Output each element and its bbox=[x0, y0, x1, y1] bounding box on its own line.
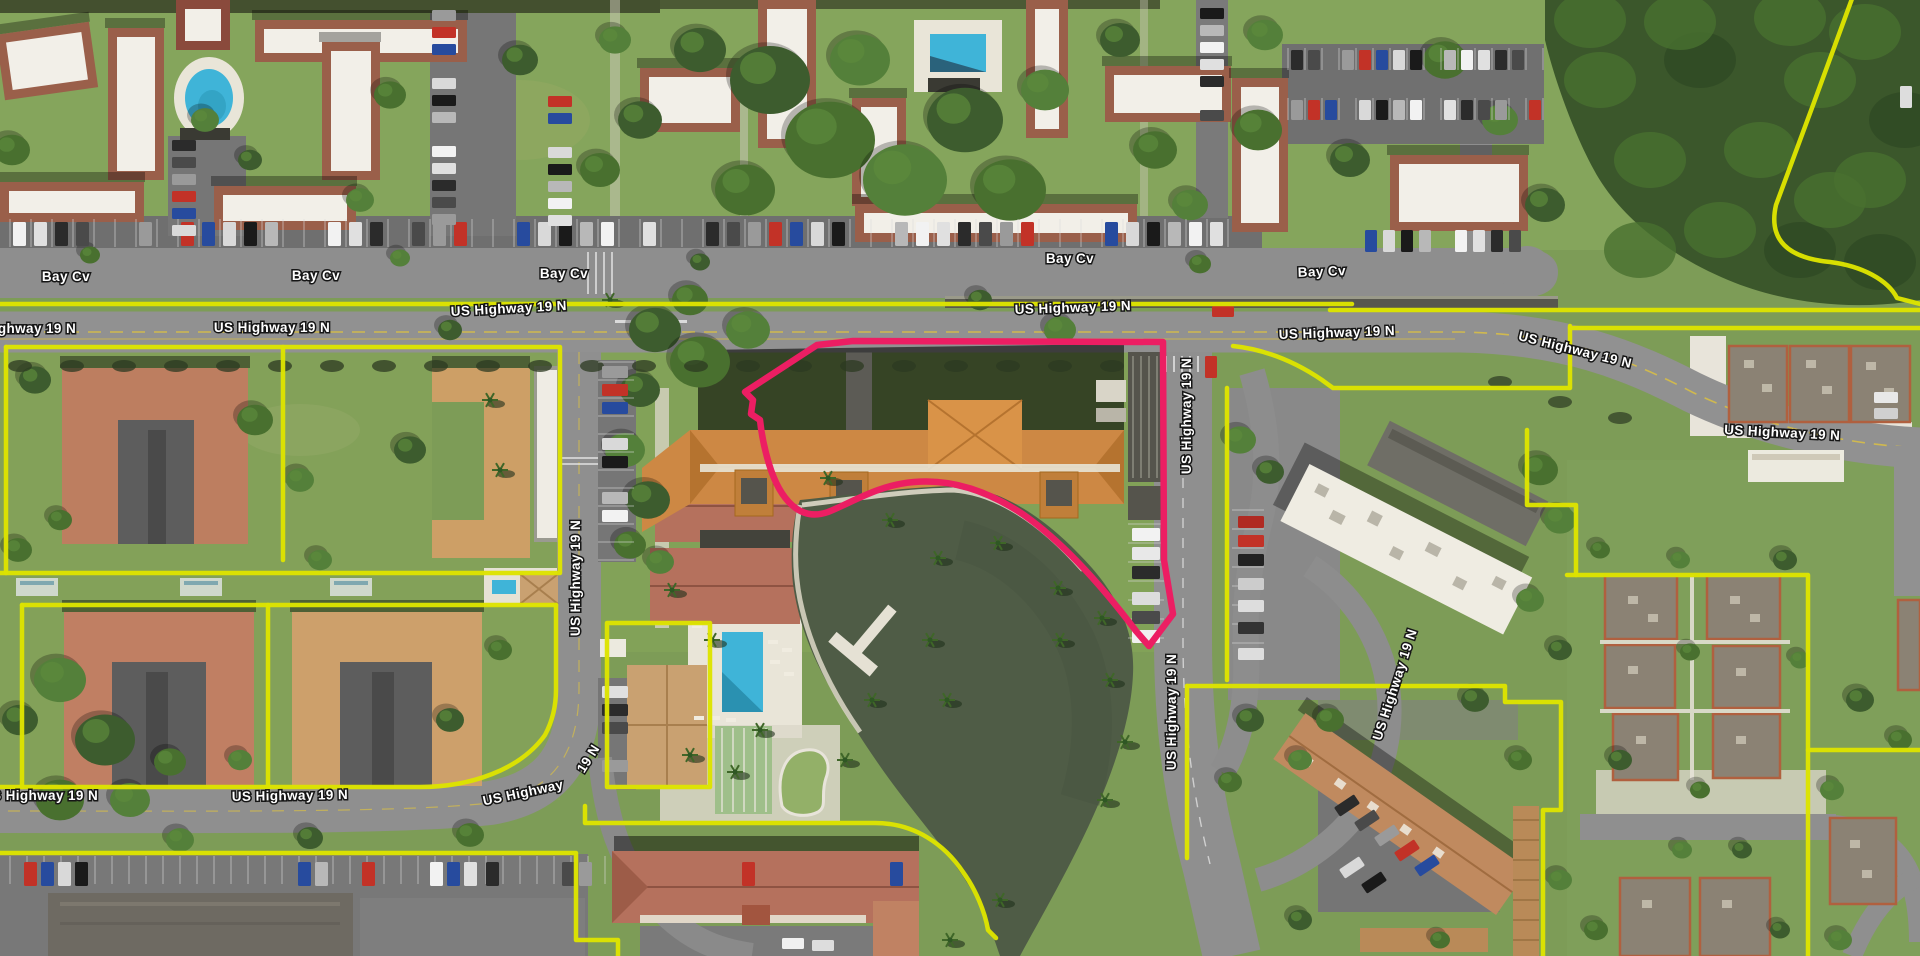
parked-car bbox=[548, 164, 572, 175]
road-label-us19-9: US Highway 19 N bbox=[232, 787, 349, 804]
parked-car bbox=[1291, 100, 1303, 120]
parked-car bbox=[432, 146, 456, 157]
parked-car bbox=[602, 456, 628, 468]
parked-car bbox=[139, 222, 152, 246]
parked-car bbox=[1365, 230, 1377, 252]
parked-car bbox=[1132, 611, 1160, 624]
parked-car bbox=[748, 222, 761, 246]
parked-car bbox=[1393, 50, 1405, 70]
parked-car bbox=[1401, 230, 1413, 252]
parked-car bbox=[562, 862, 575, 886]
parked-car bbox=[1200, 76, 1224, 87]
parked-car bbox=[1238, 554, 1264, 566]
parked-car bbox=[742, 862, 755, 886]
parked-car bbox=[172, 140, 196, 151]
parked-car bbox=[1461, 100, 1473, 120]
parked-car bbox=[1410, 50, 1422, 70]
parked-car bbox=[1238, 578, 1264, 590]
parked-car bbox=[349, 222, 362, 246]
parked-car bbox=[328, 222, 341, 246]
parked-car bbox=[447, 862, 460, 886]
parked-car bbox=[602, 510, 628, 522]
road-label-bay-cv-4: Bay Cv bbox=[1046, 251, 1094, 266]
parked-car bbox=[1200, 25, 1224, 36]
parked-car bbox=[790, 222, 803, 246]
parked-car bbox=[1512, 50, 1524, 70]
parked-car bbox=[579, 862, 592, 886]
parked-car bbox=[1419, 230, 1431, 252]
parked-car bbox=[1529, 100, 1541, 120]
parked-car bbox=[41, 862, 54, 886]
road-label-us19-1: US Highway 19 N bbox=[0, 321, 76, 336]
parked-car bbox=[1132, 528, 1160, 541]
parked-car bbox=[1376, 50, 1388, 70]
parked-car bbox=[202, 222, 215, 246]
parked-car bbox=[832, 222, 845, 246]
road-label-bay-cv-3: Bay Cv bbox=[540, 266, 588, 281]
parked-car bbox=[937, 222, 950, 246]
parked-car bbox=[1200, 110, 1224, 121]
parked-car bbox=[1495, 100, 1507, 120]
parked-car bbox=[1205, 356, 1217, 378]
parked-car bbox=[172, 225, 196, 236]
parked-car bbox=[1473, 230, 1485, 252]
parked-car bbox=[13, 222, 26, 246]
map-viewport[interactable]: Bay CvBay CvBay CvBay CvBay CvUS Highway… bbox=[0, 0, 1920, 956]
parked-car bbox=[412, 222, 425, 246]
parked-car bbox=[486, 862, 499, 886]
parked-car bbox=[454, 222, 467, 246]
parked-car bbox=[34, 222, 47, 246]
parked-car bbox=[1210, 222, 1223, 246]
parked-car bbox=[432, 10, 456, 21]
road-label-us19-v2: US Highway 19 N bbox=[1179, 358, 1194, 474]
parked-car bbox=[265, 222, 278, 246]
parked-car bbox=[1359, 100, 1371, 120]
road-label-bay-cv-2: Bay Cv bbox=[292, 268, 340, 283]
parked-car bbox=[1874, 408, 1898, 419]
parked-car bbox=[1383, 230, 1395, 252]
parked-car bbox=[602, 402, 628, 414]
parked-car bbox=[172, 191, 196, 202]
parked-car bbox=[1238, 600, 1264, 612]
parked-car bbox=[433, 222, 446, 246]
parked-car bbox=[1495, 50, 1507, 70]
parked-car bbox=[1478, 100, 1490, 120]
parked-car bbox=[1900, 86, 1912, 108]
parked-car bbox=[602, 384, 628, 396]
parked-car bbox=[1478, 50, 1490, 70]
parked-car bbox=[602, 438, 628, 450]
parked-car bbox=[916, 222, 929, 246]
parked-car bbox=[172, 208, 196, 219]
parked-car bbox=[1132, 592, 1160, 605]
parked-car bbox=[979, 222, 992, 246]
parked-car bbox=[601, 222, 614, 246]
parked-car bbox=[602, 492, 628, 504]
parked-car bbox=[362, 862, 375, 886]
parked-car bbox=[75, 862, 88, 886]
parked-car bbox=[1132, 547, 1160, 560]
parked-car bbox=[1200, 59, 1224, 70]
parked-car bbox=[464, 862, 477, 886]
parked-car bbox=[1444, 50, 1456, 70]
parked-car bbox=[1376, 100, 1388, 120]
parked-car bbox=[769, 222, 782, 246]
parked-car bbox=[602, 366, 628, 378]
parked-car bbox=[1393, 100, 1405, 120]
parked-car bbox=[24, 862, 37, 886]
parked-car bbox=[432, 163, 456, 174]
parked-car bbox=[1021, 222, 1034, 246]
parked-car bbox=[1189, 222, 1202, 246]
parked-car bbox=[580, 222, 593, 246]
parked-car bbox=[244, 222, 257, 246]
parked-car bbox=[548, 113, 572, 124]
road-label-us19-v1: US Highway 19 N bbox=[568, 520, 583, 636]
road-label-bay-cv-1: Bay Cv bbox=[42, 269, 90, 284]
parked-car bbox=[890, 862, 903, 886]
parked-car bbox=[370, 222, 383, 246]
parked-car bbox=[1105, 222, 1118, 246]
parked-car bbox=[548, 147, 572, 158]
road-label-bay-cv-5: Bay Cv bbox=[1298, 263, 1347, 280]
parked-car bbox=[958, 222, 971, 246]
parked-car bbox=[1126, 222, 1139, 246]
parked-car bbox=[1455, 230, 1467, 252]
parked-car bbox=[430, 862, 443, 886]
parked-car bbox=[727, 222, 740, 246]
parked-car bbox=[1200, 42, 1224, 53]
parked-car bbox=[895, 222, 908, 246]
parked-car bbox=[432, 197, 456, 208]
parked-car bbox=[58, 862, 71, 886]
parked-car bbox=[706, 222, 719, 246]
parked-car bbox=[1238, 516, 1264, 528]
parked-car bbox=[1308, 100, 1320, 120]
parked-car bbox=[432, 27, 456, 38]
parked-car bbox=[1132, 566, 1160, 579]
parked-car bbox=[172, 174, 196, 185]
road-label-us19-2: US Highway 19 N bbox=[214, 320, 330, 335]
parked-car bbox=[432, 78, 456, 89]
parked-car bbox=[548, 198, 572, 209]
parked-car bbox=[223, 222, 236, 246]
parked-car bbox=[1291, 50, 1303, 70]
parked-car bbox=[1238, 622, 1264, 634]
parked-car bbox=[1491, 230, 1503, 252]
parked-car bbox=[432, 112, 456, 123]
parked-car bbox=[172, 157, 196, 168]
parked-car bbox=[315, 862, 328, 886]
parked-car bbox=[1325, 100, 1337, 120]
parked-car bbox=[548, 96, 572, 107]
parked-car bbox=[1168, 222, 1181, 246]
parked-car bbox=[432, 180, 456, 191]
parked-car bbox=[811, 222, 824, 246]
parked-car bbox=[432, 95, 456, 106]
parked-car bbox=[643, 222, 656, 246]
parked-car bbox=[1147, 222, 1160, 246]
parked-car bbox=[1200, 8, 1224, 19]
parked-car bbox=[1342, 50, 1354, 70]
road-label-us19-8: US Highway 19 N bbox=[0, 788, 98, 803]
parked-car bbox=[517, 222, 530, 246]
parked-car bbox=[76, 222, 89, 246]
parked-car bbox=[1410, 100, 1422, 120]
parked-car bbox=[1238, 535, 1264, 547]
parked-car bbox=[1874, 392, 1898, 403]
parked-car bbox=[1461, 50, 1473, 70]
satellite-map: Bay CvBay CvBay CvBay CvBay CvUS Highway… bbox=[0, 0, 1920, 956]
parked-car bbox=[548, 215, 572, 226]
parked-car bbox=[55, 222, 68, 246]
parked-car bbox=[1509, 230, 1521, 252]
parked-car bbox=[782, 938, 804, 949]
parked-car bbox=[548, 181, 572, 192]
parked-car bbox=[812, 940, 834, 951]
parked-car bbox=[1308, 50, 1320, 70]
parked-car bbox=[1359, 50, 1371, 70]
parked-car bbox=[1212, 306, 1234, 317]
parked-car bbox=[298, 862, 311, 886]
parked-car bbox=[432, 44, 456, 55]
parked-car bbox=[1238, 648, 1264, 660]
parked-car bbox=[432, 214, 456, 225]
road-label-us19-v3: US Highway 19 N bbox=[1164, 654, 1179, 770]
parked-car bbox=[1000, 222, 1013, 246]
parked-car bbox=[1444, 100, 1456, 120]
